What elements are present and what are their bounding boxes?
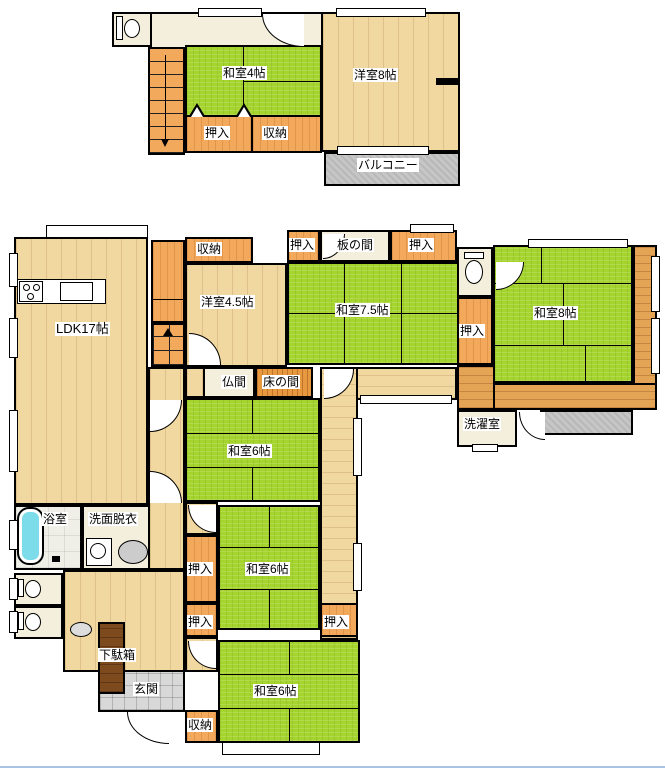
toilet-icon	[25, 613, 41, 631]
label-washitsu6-1: 和室6帖	[227, 444, 272, 458]
engawa-bottom	[493, 383, 657, 410]
tatami-line	[541, 247, 542, 283]
tatami-line	[585, 345, 586, 381]
toilet-icon	[18, 579, 24, 597]
porch	[540, 410, 633, 435]
door-arc	[519, 412, 545, 440]
corridor-west	[148, 367, 185, 570]
window	[9, 520, 18, 550]
label-oshiire-2f: 押入	[204, 126, 230, 140]
window	[9, 410, 18, 472]
window	[528, 239, 628, 248]
stove-burner	[33, 284, 40, 291]
toilet-icon	[124, 19, 140, 38]
label-senmen: 洗面脱衣	[88, 512, 138, 526]
label-oshiire-e: 押入	[187, 615, 213, 629]
toilet-icon	[465, 260, 483, 284]
window	[353, 418, 362, 476]
tatami-line	[289, 708, 290, 741]
door-marker	[238, 107, 250, 117]
window	[9, 253, 18, 287]
label-washitsu6-3: 和室6帖	[253, 684, 298, 698]
washing-machine-icon	[90, 543, 106, 559]
entrance-door-arc	[127, 712, 169, 744]
toilet-icon	[18, 612, 24, 630]
label-washitsu8: 和室8帖	[533, 306, 578, 320]
label-genkan: 玄関	[133, 682, 159, 696]
hall-piece	[185, 367, 205, 398]
bath-fixture	[52, 556, 60, 562]
label-sentaku: 洗濯室	[463, 417, 501, 431]
stove-burner	[27, 293, 34, 300]
bathtub-icon	[17, 507, 44, 565]
hand-basin-icon	[70, 622, 92, 637]
stairs-up-mark	[163, 328, 173, 336]
tatami-line	[243, 81, 320, 82]
tatami-line	[220, 674, 358, 675]
label-itanoma: 板の間	[336, 238, 374, 252]
tatami-line	[495, 345, 631, 346]
door-marker	[191, 107, 203, 117]
label-oshiire-c: 押入	[459, 324, 485, 338]
window	[651, 318, 660, 374]
label-shuunou-btm: 収納	[187, 718, 213, 732]
label-balcony-2f: バルコニー	[357, 158, 419, 172]
label-washitsu75: 和室7.5帖	[335, 303, 390, 317]
floorplan-canvas: 和室4帖 洋室8帖 押入 収納 バルコニー	[0, 0, 665, 769]
wall-stub	[436, 78, 460, 85]
label-shuunou-2f: 収納	[262, 126, 288, 140]
closet-divider	[153, 299, 183, 300]
label-oshiire-d: 押入	[187, 562, 213, 576]
window	[410, 224, 454, 233]
corridor-south	[320, 367, 358, 640]
sink-icon	[118, 540, 148, 564]
toilet-icon	[464, 252, 484, 259]
closet-column	[151, 240, 185, 323]
window	[360, 395, 452, 404]
window	[9, 578, 18, 600]
tatami-line	[289, 642, 290, 674]
window	[337, 146, 429, 155]
label-getabako: 下駄箱	[98, 648, 136, 662]
label-yokushitsu: 浴室	[42, 512, 68, 526]
window	[472, 444, 498, 452]
label-ldk: LDK17帖	[55, 322, 110, 336]
window	[198, 8, 262, 17]
label-oshiire-f: 押入	[323, 615, 349, 629]
window	[9, 611, 18, 633]
window	[222, 742, 320, 755]
bay-window	[46, 225, 148, 238]
label-youshitsu8-2f: 洋室8帖	[353, 68, 398, 82]
tatami-line	[187, 433, 318, 434]
window	[353, 543, 362, 591]
engawa-corner	[457, 365, 495, 410]
tatami-line	[269, 589, 270, 628]
tatami-line	[252, 467, 253, 500]
label-butsuma: 仏間	[221, 375, 247, 389]
scan-artifact-line	[0, 766, 665, 768]
label-oshiire-b: 押入	[408, 238, 434, 252]
label-washitsu6-2: 和室6帖	[245, 562, 290, 576]
tatami-line	[220, 547, 318, 548]
toilet-icon	[116, 16, 123, 40]
tatami-line	[252, 400, 253, 433]
room-ldk	[14, 237, 148, 505]
label-youshitsu45: 洋室4.5帖	[200, 295, 255, 309]
tatami-line	[269, 507, 270, 547]
label-tokonoma: 床の間	[262, 375, 300, 389]
toilet-icon	[25, 580, 41, 598]
label-washitsu4-2f: 和室4帖	[222, 66, 267, 80]
stove-burner	[23, 284, 30, 291]
stairs-down-arrow	[165, 55, 166, 140]
window	[336, 8, 426, 17]
label-oshiire-a: 押入	[289, 238, 315, 252]
window	[9, 318, 18, 358]
label-shuunou-top: 収納	[196, 242, 222, 256]
sink-icon	[60, 282, 93, 301]
window	[651, 256, 660, 312]
stairs-down-arrow	[161, 139, 169, 147]
